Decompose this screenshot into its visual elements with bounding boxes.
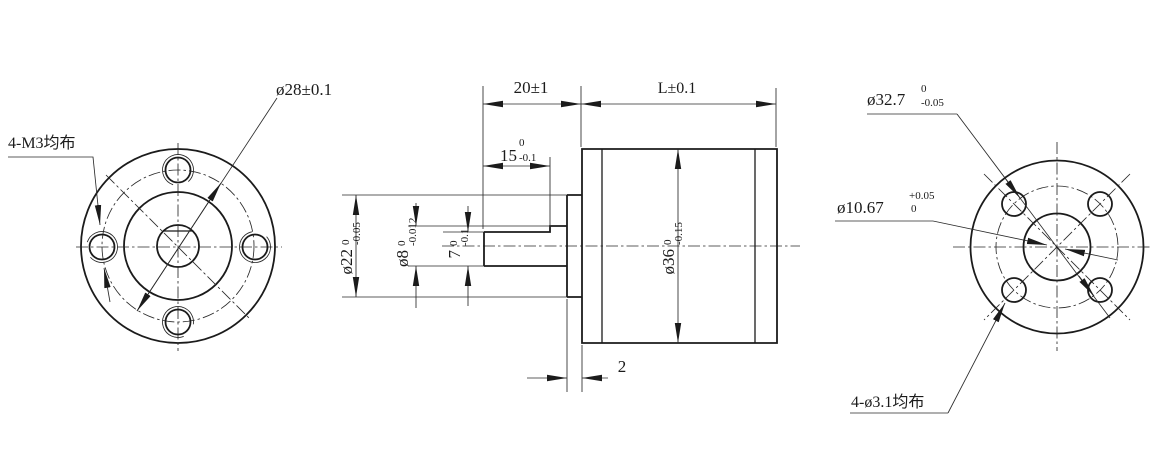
flat-height-tol-lower: -0.1 [459,229,471,246]
engineering-drawing-page: ø28±0.1 4-M3均布 20±1 L±0.1 [0,0,1169,473]
body-length-dim-label: L±0.1 [658,80,697,97]
shaft-extension-dim-label: 20±1 [514,78,549,97]
flat-length-tol-upper: 0 [519,137,525,149]
dim-flat-height: 7 0 -0.1 [445,206,471,306]
flat-height-label: 7 [445,250,464,259]
front-hole-callout: 4-M3均布 [8,134,110,302]
rear-hole-callout-label: 4-ø3.1均布 [851,393,924,411]
center-dia-tol-upper: +0.05 [909,190,935,202]
front-view: ø28±0.1 4-M3均布 [8,80,332,351]
center-dia-label: ø10.67 [837,198,884,217]
flat-length-dim-label: 15 [500,146,517,165]
dim-boss-thickness: 2 [527,357,626,378]
dim-flat-length: 15 0 -0.1 [483,137,550,166]
drawing-canvas: ø28±0.1 4-M3均布 20±1 L±0.1 [0,0,1169,473]
boss-thickness-label: 2 [618,357,627,376]
center-dia-tol-lower: 0 [911,203,917,215]
spigot-dia-tol-upper: 0 [921,83,927,95]
dim-shaft-diameter: ø8 0 -0.012 [393,203,419,308]
spigot-dia-label: ø32.7 [867,90,906,109]
spigot-dia-tol-lower: -0.05 [921,97,944,109]
body-dia-label: ø36 [659,249,678,275]
dim-center-diameter: ø10.67 +0.05 0 [835,190,1118,260]
side-view: 20±1 L±0.1 15 0 -0.1 ø22 0 -0.05 ø8 [337,78,800,392]
bolt-circle-dim-label: ø28±0.1 [276,80,332,99]
dim-spigot-diameter: ø32.7 0 -0.05 [867,83,1110,318]
flat-length-tol-lower: -0.1 [519,152,536,164]
pilot-dia-label: ø22 [337,249,356,275]
dim-body-length: L±0.1 [581,80,776,104]
shaft-dia-tol-lower: -0.012 [407,218,419,246]
front-hole-callout-label: 4-M3均布 [8,134,76,152]
rear-hole-callout: 4-ø3.1均布 [850,303,1005,413]
rear-view: ø32.7 0 -0.05 ø10.67 +0.05 0 4-ø3.1均布 [835,83,1152,413]
body-dia-tol-lower: -0.15 [673,222,685,245]
dim-pilot-diameter: ø22 0 -0.05 [337,195,363,297]
shaft-dia-label: ø8 [393,250,412,267]
pilot-dia-tol-lower: -0.05 [351,222,363,245]
dim-shaft-extension: 20±1 [483,78,581,104]
